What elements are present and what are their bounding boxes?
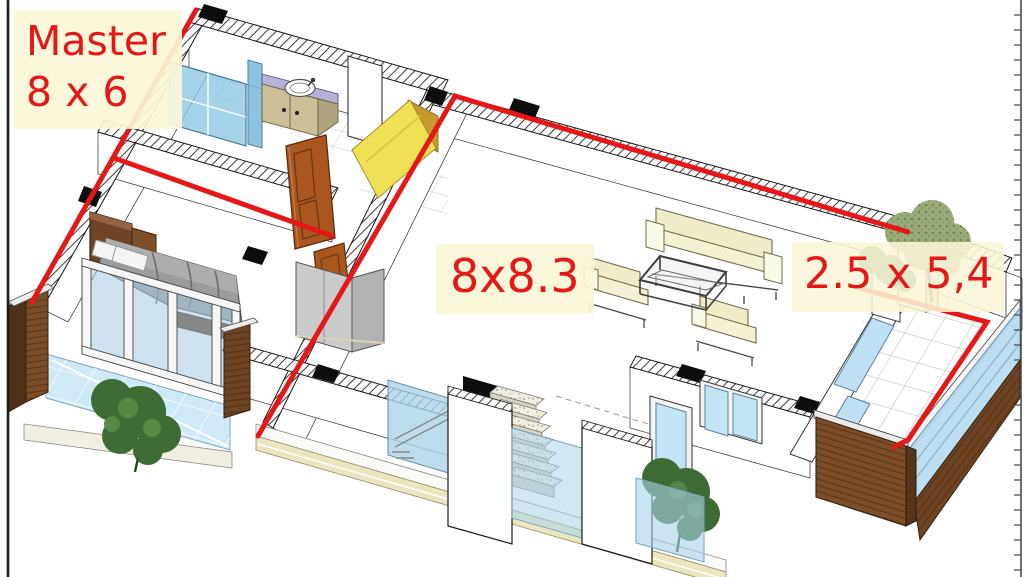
coffee-table (640, 256, 726, 310)
floorplan-render: Master 8 x 6 8x8.3 2.5 x 5,4 (0, 0, 1028, 577)
armchair (692, 296, 756, 366)
front-window-pane (733, 393, 757, 441)
terrace-dimension-label: 2.5 x 5,4 (792, 242, 1004, 312)
window-mullion (82, 262, 91, 353)
living-room-size: 8x8.3 (450, 249, 580, 303)
window-mullion (168, 287, 177, 378)
shower-partition (248, 60, 262, 148)
master-room-name: Master (26, 16, 166, 67)
stair-wall-left (448, 392, 512, 544)
front-plant (636, 458, 720, 562)
window-mullion (212, 300, 221, 391)
master-room-size: 8 x 6 (26, 67, 166, 118)
window-mullion (124, 274, 133, 365)
master-dimension-label: Master 8 x 6 (14, 10, 182, 129)
stair-glass-mid (512, 428, 582, 538)
living-dimension-label: 8x8.3 (436, 244, 594, 314)
terrace-size: 2.5 x 5,4 (804, 249, 994, 299)
cabinet-knob (295, 111, 299, 115)
front-window-pane (705, 385, 728, 436)
wardrobe (296, 262, 384, 352)
staircase (388, 376, 652, 564)
cabinet-knob (282, 108, 286, 112)
